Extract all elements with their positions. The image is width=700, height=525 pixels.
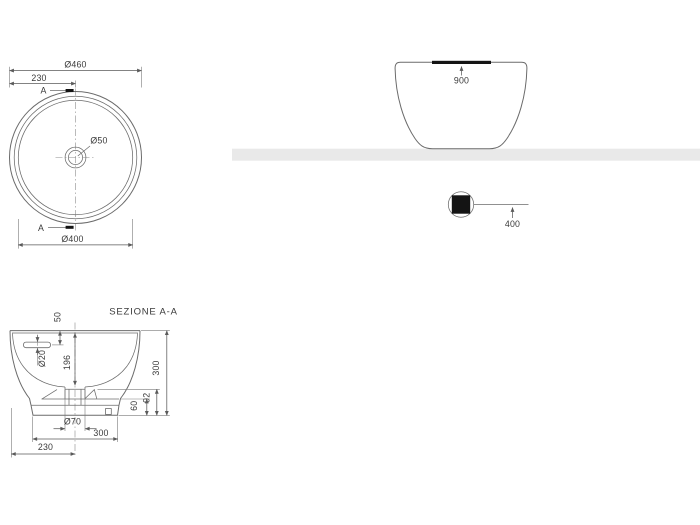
dim-label-center-offset: 230 bbox=[31, 73, 46, 83]
dim-label-rim-to-overflow: 50 bbox=[53, 312, 63, 322]
dim-bowl-depth: 196 bbox=[62, 333, 75, 385]
dim-label-edge-to-center: 230 bbox=[38, 442, 53, 452]
dim-label-rim-height: 900 bbox=[454, 76, 469, 86]
technical-drawing-canvas: Ø460 230 A A Ø50 Ø40 bbox=[0, 0, 700, 525]
section-letter-bottom: A bbox=[38, 223, 44, 233]
fixing-hole bbox=[106, 409, 112, 415]
dim-label-outlet-height: 400 bbox=[505, 219, 520, 229]
countertop-band bbox=[232, 149, 700, 161]
section-title: SEZIONE A-A bbox=[109, 307, 177, 318]
section-cut-tick-top bbox=[66, 89, 74, 92]
dim-label-outer-diameter: Ø460 bbox=[64, 60, 86, 70]
dim-rim-height: 900 bbox=[454, 67, 469, 86]
front-view: 900 400 bbox=[232, 61, 700, 229]
technical-drawing-page: Ø460 230 A A Ø50 Ø40 bbox=[0, 0, 700, 525]
dim-overflow-diameter: Ø20 bbox=[37, 335, 47, 367]
dim-drain-diameter: Ø50 bbox=[78, 136, 108, 156]
rim-highlight-bar bbox=[432, 61, 491, 64]
dim-label-drain-diameter: Ø50 bbox=[90, 136, 107, 146]
dim-rim-to-overflow: 50 bbox=[52, 312, 64, 345]
plan-view: Ø460 230 A A Ø50 Ø40 bbox=[10, 60, 142, 249]
section-cut-tick-bottom bbox=[66, 226, 74, 229]
dim-label-base-width: 300 bbox=[93, 428, 108, 438]
overflow-slot bbox=[24, 342, 51, 348]
waste-outlet-square bbox=[452, 195, 470, 213]
dim-label-bowl-depth: 196 bbox=[62, 355, 72, 370]
dim-label-overall-height: 300 bbox=[151, 360, 161, 375]
dim-label-inner-diameter: Ø400 bbox=[61, 234, 83, 244]
dim-label-outlet-height-section: 92 bbox=[141, 393, 151, 403]
section-view: SEZIONE A-A 50 bbox=[10, 307, 178, 458]
dim-label-drain-hole: Ø70 bbox=[64, 417, 81, 427]
right-rib bbox=[85, 390, 97, 399]
dim-label-base-height: 60 bbox=[129, 401, 139, 411]
left-rib bbox=[42, 390, 57, 399]
section-letter-top: A bbox=[40, 86, 46, 96]
dim-label-overflow-diameter: Ø20 bbox=[37, 350, 47, 367]
section-marker-bottom: A bbox=[38, 223, 74, 233]
drain-leader-line bbox=[78, 146, 90, 156]
waste-outlet-symbol: 400 bbox=[448, 192, 528, 229]
